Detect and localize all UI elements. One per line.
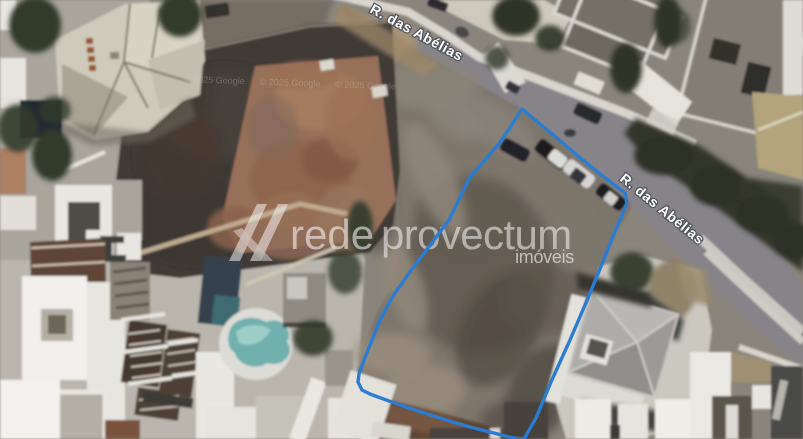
svg-text:imóveis: imóveis — [515, 247, 574, 267]
svg-text:rede: rede — [290, 211, 374, 258]
